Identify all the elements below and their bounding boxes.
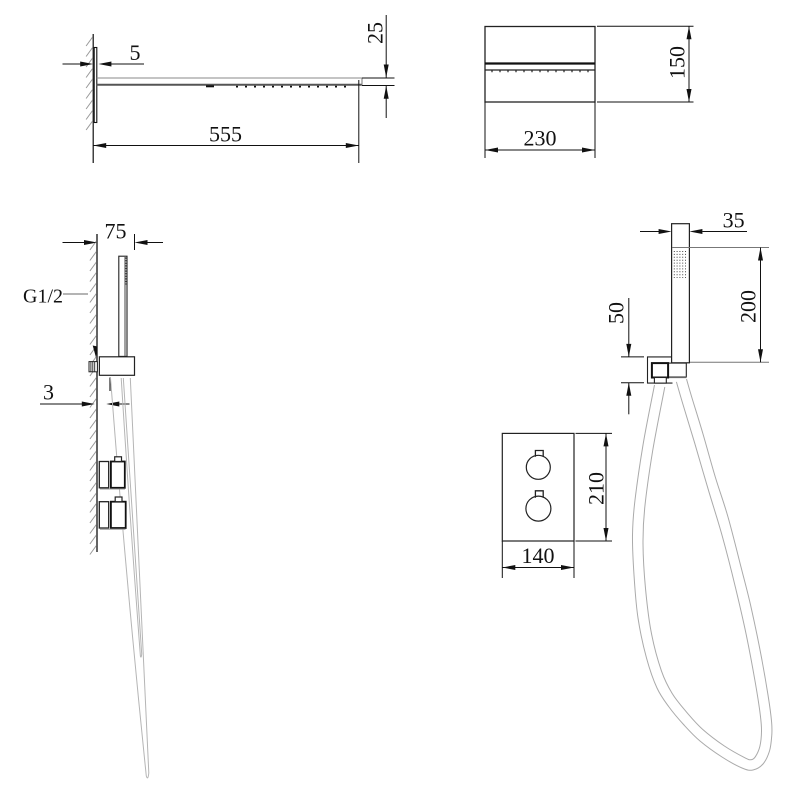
svg-text:35: 35 [723, 208, 745, 233]
svg-text:50: 50 [604, 302, 629, 324]
svg-text:G1/2: G1/2 [23, 286, 63, 308]
svg-text:200: 200 [736, 290, 761, 323]
svg-text:75: 75 [105, 219, 127, 244]
svg-text:3: 3 [43, 380, 54, 405]
svg-text:230: 230 [524, 126, 557, 151]
svg-text:150: 150 [665, 46, 690, 79]
svg-text:210: 210 [584, 472, 609, 505]
svg-text:140: 140 [522, 543, 555, 568]
svg-text:25: 25 [363, 22, 388, 44]
svg-text:555: 555 [209, 122, 242, 147]
svg-text:5: 5 [130, 40, 141, 65]
